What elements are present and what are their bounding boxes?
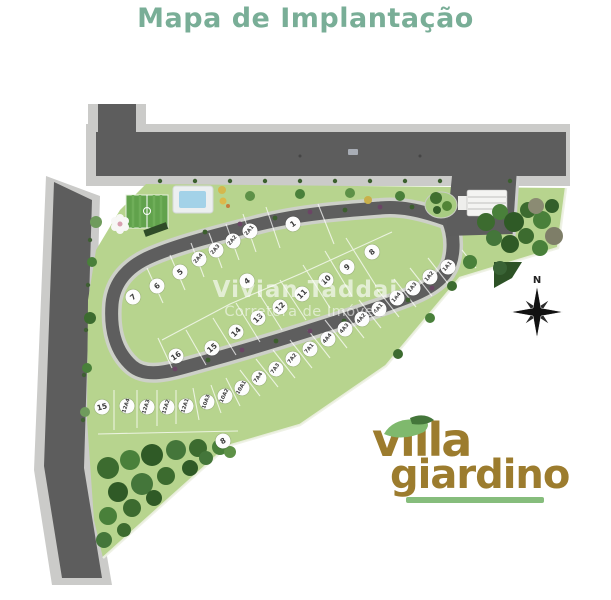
site-plan-map: N: [0, 0, 611, 600]
sports-field: [126, 195, 168, 228]
logo-word-giardino: giardino: [390, 457, 576, 493]
logo-leaf-icon: [380, 412, 444, 444]
compass-north-label: N: [533, 275, 541, 286]
villa-giardino-logo: villa giardino: [366, 420, 576, 503]
swimming-pool: [173, 186, 213, 213]
compass-rose: N: [511, 275, 563, 338]
logo-underline: [406, 497, 544, 503]
compass-star-main: [511, 286, 563, 338]
site-plan-page: Mapa de Implantação: [0, 0, 611, 600]
